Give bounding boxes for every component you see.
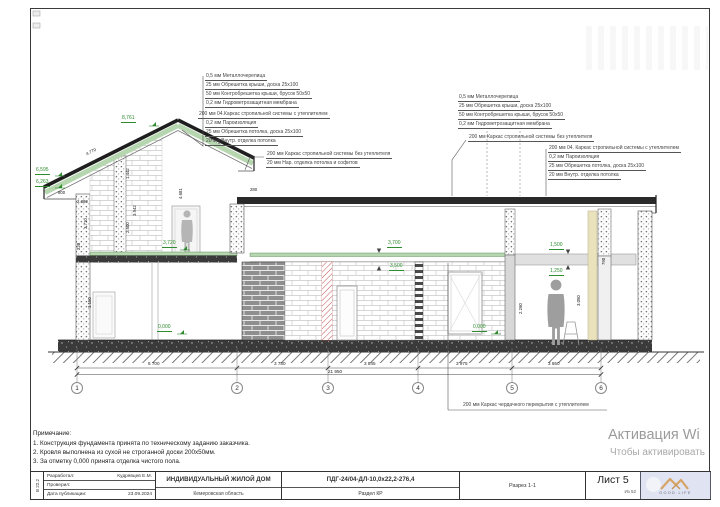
title-block-sheet: Лист 5 Из 52: [586, 472, 641, 499]
title-block: В 22.2 Разработал: Кудрявцев Е.М. Провер…: [30, 471, 711, 500]
title-block-view: Разрез 1-1: [460, 472, 586, 499]
checked-label: Проверил:: [47, 481, 70, 489]
developed-label: Разработал:: [47, 472, 74, 480]
sheet-number: Лист 5: [586, 472, 640, 489]
title-block-code: ПДГ-24/04-ДЛ-10,0х22,2-276,4 Раздел КР: [282, 472, 460, 499]
title-block-project: ИНДИВИДУАЛЬНЫЙ ЖИЛОЙ ДОМ Кемеровская обл…: [156, 472, 282, 499]
view-name: Разрез 1-1: [509, 483, 536, 489]
document-code: ПДГ-24/04-ДЛ-10,0х22,2-276,4: [282, 472, 459, 488]
sheet-total: Из 52: [586, 489, 640, 494]
title-block-signatures: Разработал: Кудрявцев Е.М. Проверил: Дат…: [44, 472, 156, 499]
avito-watermark-bottom: [640, 472, 711, 499]
document-section: Раздел КР: [282, 488, 459, 500]
date-label: Дата публикации:: [47, 490, 86, 499]
project-name: ИНДИВИДУАЛЬНЫЙ ЖИЛОЙ ДОМ: [156, 472, 281, 488]
developed-by: Кудрявцев Е.М.: [117, 472, 152, 480]
project-location: Кемеровская область: [156, 488, 281, 500]
title-block-side-stamp: В 22.2: [31, 472, 44, 499]
sheet-frame: [30, 8, 710, 499]
side-stamp-text: В 22.2: [35, 479, 40, 492]
publication-date: 23.09.2024: [128, 490, 152, 499]
drawing-sheet: 0,5 мм Металлочерепица 25 мм Обрешетка к…: [0, 0, 720, 507]
